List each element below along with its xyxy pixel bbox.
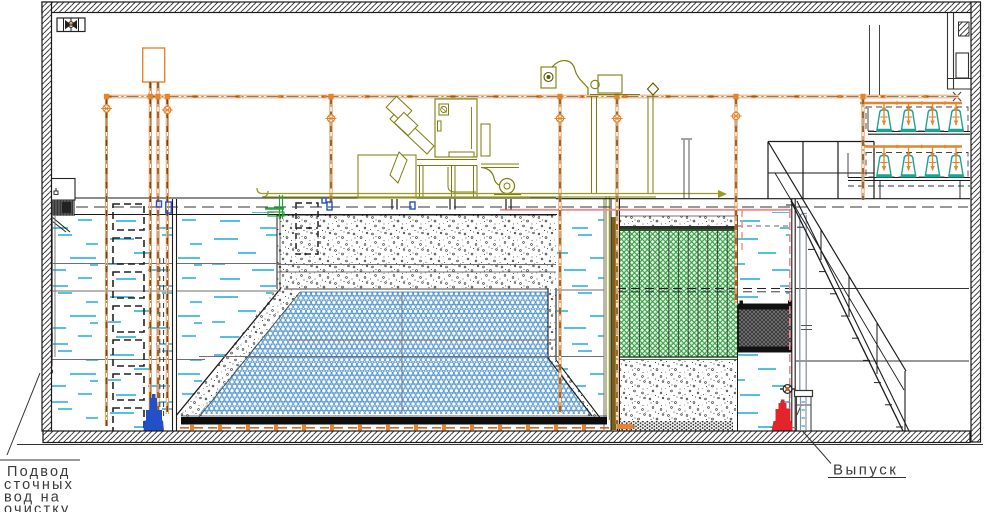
svg-text:очистку: очистку bbox=[4, 502, 70, 512]
svg-text:Выпуск: Выпуск bbox=[833, 462, 898, 479]
